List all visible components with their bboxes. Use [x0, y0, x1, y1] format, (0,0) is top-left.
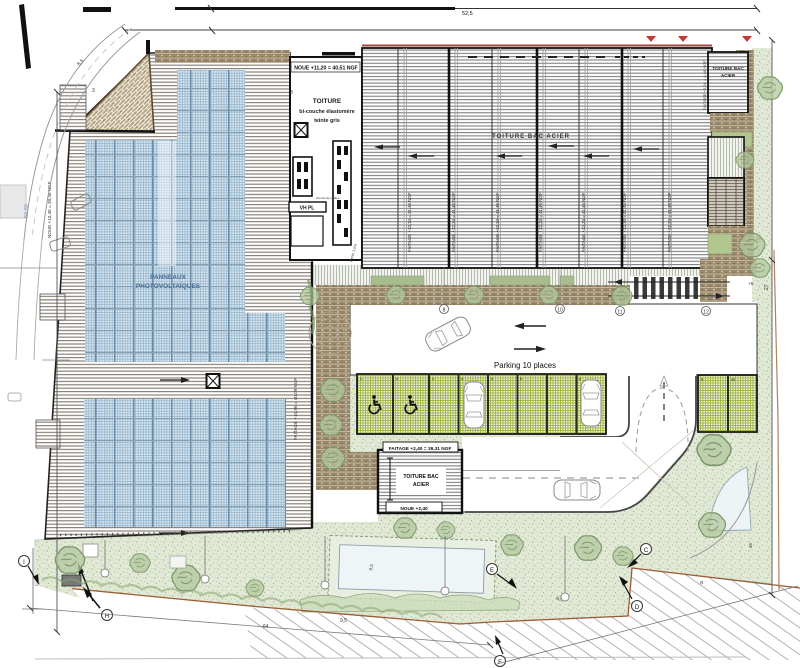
svg-text:1: 1	[360, 377, 362, 381]
svg-text:FAITAGE +12,34 = 41,45 NGF: FAITAGE +12,34 = 41,45 NGF	[451, 192, 456, 252]
svg-text:Parking 10 places: Parking 10 places	[494, 361, 556, 370]
svg-text:4: 4	[461, 377, 463, 381]
svg-text:NOUE +11,20 = 40,51 NGF: NOUE +11,20 = 40,51 NGF	[294, 66, 357, 72]
svg-text:52,80: 52,80	[24, 204, 30, 218]
svg-text:10: 10	[557, 308, 563, 314]
svg-text:C: C	[644, 548, 649, 554]
svg-text:64: 64	[263, 624, 269, 630]
svg-text:FAITAGE +2,40 = 39,31 NGF: FAITAGE +2,40 = 39,31 NGF	[389, 446, 452, 452]
svg-text:3: 3	[290, 90, 293, 96]
svg-text:11: 11	[617, 310, 622, 316]
svg-text:TOITURE BAC: TOITURE BAC	[403, 474, 439, 480]
svg-text:ACIER: ACIER	[721, 73, 736, 78]
svg-text:PANNEAUX: PANNEAUX	[150, 274, 187, 281]
svg-text:6: 6	[520, 377, 522, 381]
svg-text:ACIER: ACIER	[413, 482, 429, 488]
svg-text:FAITAGE +12,34 = 41,45 NGF: FAITAGE +12,34 = 41,45 NGF	[667, 192, 672, 252]
svg-text:chemin de câbles: chemin de câbles	[316, 196, 340, 200]
svg-text:bi-couche élastomère: bi-couche élastomère	[299, 109, 354, 115]
svg-text:E: E	[490, 568, 494, 574]
svg-text:52,5: 52,5	[462, 11, 473, 17]
svg-text:9: 9	[701, 378, 703, 382]
svg-text:3: 3	[432, 377, 434, 381]
svg-text:45: 45	[748, 542, 753, 548]
svg-text:FAITAGE +12,34 = 41,45 NGF: FAITAGE +12,34 = 41,45 NGF	[622, 192, 627, 252]
svg-text:8: 8	[443, 308, 446, 314]
svg-text:FAITAGE +12,34 = 41,45 NGF: FAITAGE +12,34 = 41,45 NGF	[581, 192, 586, 252]
svg-text:TOITURE BAC ACIER: TOITURE BAC ACIER	[492, 134, 570, 140]
svg-text:FAITAGE +2,94 = 4,48 NGF: FAITAGE +2,94 = 4,48 NGF	[702, 60, 707, 110]
svg-text:teinte gris: teinte gris	[314, 118, 340, 124]
svg-text:FAITAGE +12,34 = 41,45 NGF: FAITAGE +12,34 = 41,45 NGF	[538, 192, 543, 252]
svg-text:+5: +5	[748, 281, 754, 286]
svg-text:FAITAGE +12,34 = 41,45 NGF: FAITAGE +12,34 = 41,45 NGF	[495, 192, 500, 252]
svg-text:D: D	[635, 605, 640, 611]
svg-text:2: 2	[396, 377, 398, 381]
svg-text:10: 10	[731, 378, 735, 382]
svg-text:3: 3	[92, 88, 95, 94]
svg-text:FAITAGE +12,34 = 41,45 NGF: FAITAGE +12,34 = 41,45 NGF	[407, 192, 412, 252]
svg-text:7: 7	[550, 377, 552, 381]
svg-text:FAITAGE +10,96 = 40,09 NGF: FAITAGE +10,96 = 40,09 NGF	[293, 378, 298, 440]
svg-text:TOITURE: TOITURE	[313, 98, 342, 105]
svg-text:12: 12	[703, 310, 709, 316]
svg-text:8: 8	[579, 377, 581, 381]
svg-text:9,5: 9,5	[340, 618, 347, 624]
svg-text:VH PL: VH PL	[300, 206, 315, 212]
svg-text:PHOTOVOLTAÏQUES: PHOTOVOLTAÏQUES	[136, 282, 201, 290]
svg-text:H: H	[105, 614, 109, 620]
svg-text:5: 5	[491, 377, 493, 381]
svg-text:TOITURE BAC: TOITURE BAC	[712, 66, 744, 71]
svg-text:NOUE +2,40: NOUE +2,40	[400, 506, 428, 512]
svg-text:27: 27	[764, 284, 770, 290]
